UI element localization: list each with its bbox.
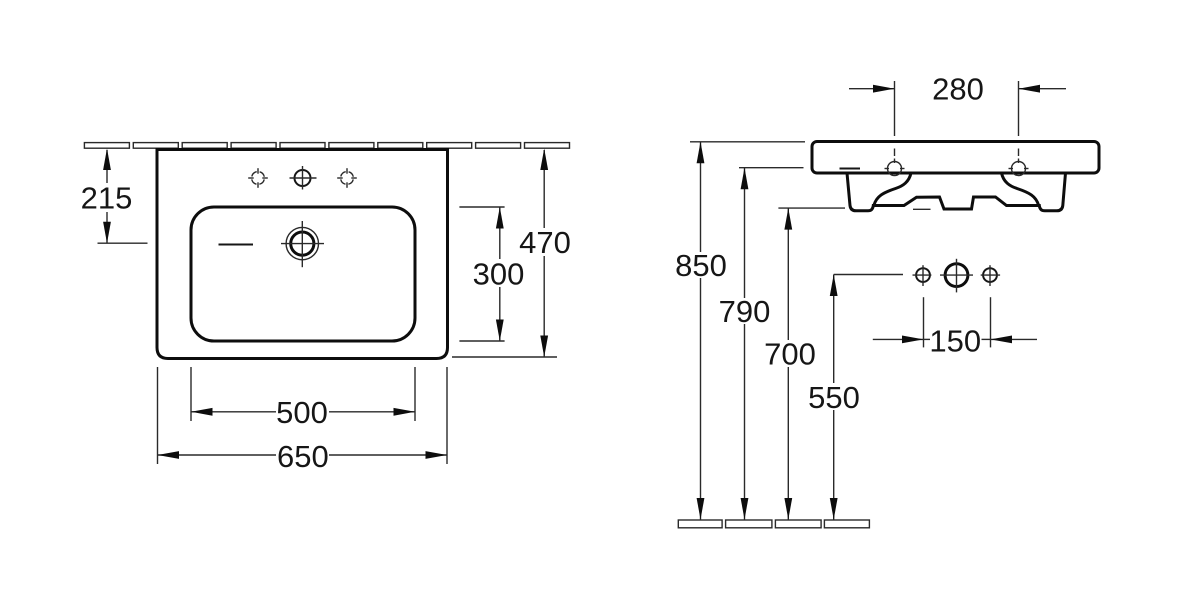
- svg-text:550: 550: [808, 380, 860, 415]
- svg-text:280: 280: [932, 72, 984, 107]
- svg-text:215: 215: [81, 180, 133, 215]
- svg-text:500: 500: [276, 395, 328, 430]
- svg-text:790: 790: [719, 294, 771, 329]
- svg-text:470: 470: [519, 225, 571, 260]
- svg-text:150: 150: [929, 324, 981, 359]
- svg-text:850: 850: [675, 248, 727, 283]
- svg-text:650: 650: [277, 439, 329, 474]
- svg-text:700: 700: [764, 337, 816, 372]
- svg-text:300: 300: [473, 256, 525, 291]
